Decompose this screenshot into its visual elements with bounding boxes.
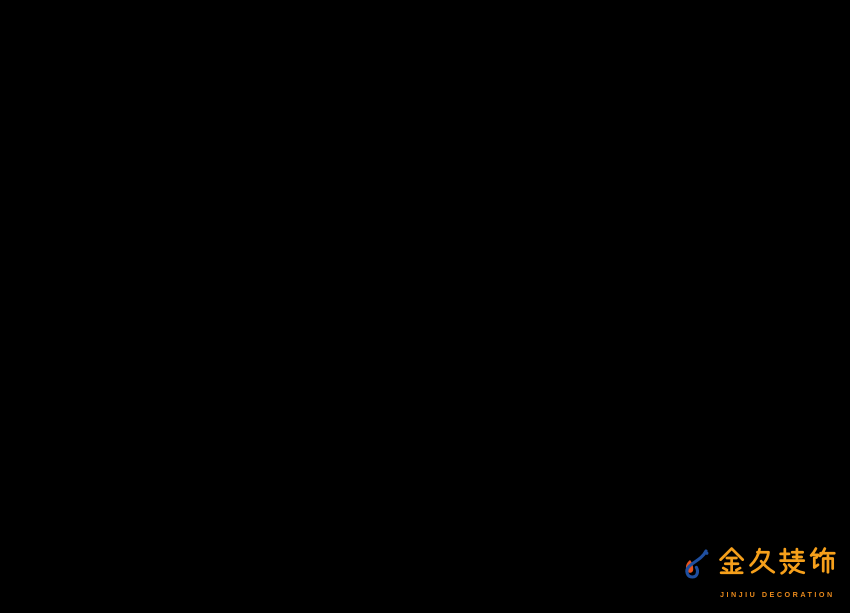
glyph-jin: [721, 549, 743, 573]
office-3d-render: [0, 0, 850, 613]
glyph-shi: [811, 549, 834, 573]
brand-logo-mark: [686, 551, 708, 577]
glyph-zhuang: [781, 549, 804, 573]
logo-swoosh-shape: [687, 551, 706, 577]
brand-logo-english: JINJIU DECORATION: [720, 590, 835, 599]
brand-logo: JINJIU DECORATION: [678, 542, 842, 604]
logo-dot: [705, 552, 708, 555]
brand-logo-chinese: [721, 549, 835, 574]
glyph-jiu: [751, 549, 774, 572]
render-stage: [0, 0, 850, 613]
brand-logo-svg: JINJIU DECORATION: [678, 542, 842, 604]
